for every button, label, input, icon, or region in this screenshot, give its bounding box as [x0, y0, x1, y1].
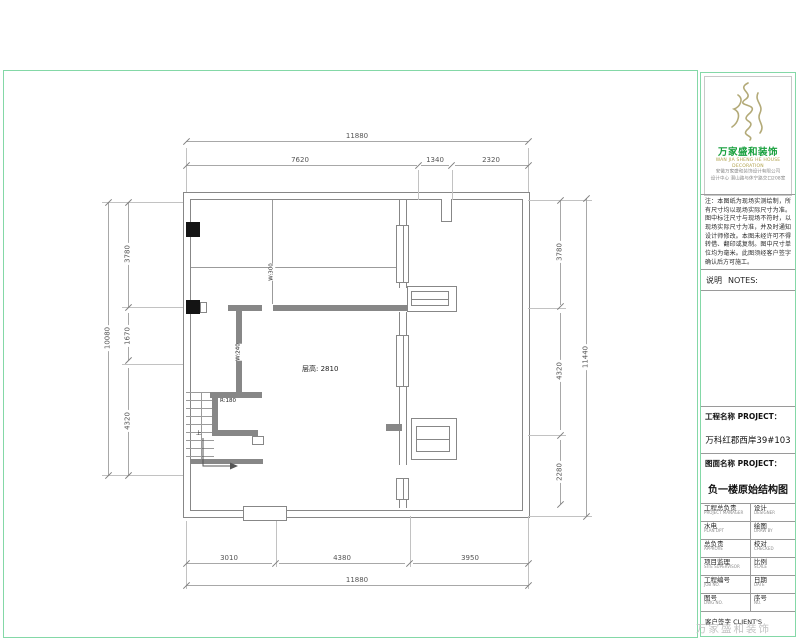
project-name: 万科红郡西岸39#103: [705, 434, 790, 446]
drawing-name-row: 负一楼原始结构图: [701, 473, 795, 503]
wall-protrusion: [243, 506, 287, 521]
project-label: 工程名称 PROJECT：: [705, 411, 781, 422]
drawing-name: 负一楼原始结构图: [708, 481, 788, 496]
cad-sheet: 层高: 2810 W:300 W:240 R:180 上 11880 7620 …: [0, 0, 800, 640]
interior-wall-horizontal: [228, 305, 410, 311]
dim-line-top-seg1: [186, 165, 417, 166]
cell-en: JOB NO.: [704, 584, 745, 588]
project-name-row: 万科红郡西岸39#103: [701, 426, 795, 453]
floor-height-label: 层高: 2810: [302, 366, 338, 373]
company-line2: 设计中心 潜山路与休宁路交口208室: [708, 176, 787, 182]
dim-bottom-seg2: 4380: [331, 555, 353, 562]
table-row: 工程总负责PROJECT MANAGER 设计DESIGNER: [701, 504, 795, 522]
dim-top-total: 11880: [344, 133, 370, 140]
dim-right-seg2: 4320: [557, 360, 564, 382]
dim-bottom-total: 11880: [344, 577, 370, 584]
cell-en: NO.: [754, 602, 791, 606]
up-arrow: [196, 436, 241, 474]
ext-line: [528, 308, 566, 309]
partition-horizontal: [191, 267, 399, 268]
ext-line: [418, 170, 419, 200]
ext-line: [102, 475, 183, 476]
ext-line: [186, 521, 187, 589]
window-symbol-lower: [396, 478, 409, 500]
cell-en: SCALE: [754, 566, 791, 570]
notes-header: 说明 NOTES:: [701, 269, 795, 291]
general-notes: 注：本图纸为现场实测绘制，所有尺寸均以现场实际尺寸为准。图中标注尺寸与现场不符时…: [701, 194, 795, 269]
dim-left-seg3: 4320: [125, 410, 132, 432]
column-top-left: [186, 222, 200, 237]
dim-right-seg3: 2280: [557, 461, 564, 483]
dim-line-bottom-seg2: [279, 563, 405, 564]
wall-stub: [386, 424, 402, 431]
title-block-panel: 万家盛和装饰 WAN JIA SHENG HE HOUSE DECORATION…: [700, 72, 796, 637]
ext-line: [186, 148, 187, 192]
table-row: 项目监理SITE SUPERVISOR 比例SCALE: [701, 558, 795, 576]
column-tab: [200, 302, 207, 313]
table-row: 图号DWG NO. 序号NO.: [701, 594, 795, 612]
ext-line: [122, 364, 183, 365]
ext-line: [528, 516, 592, 517]
dim-left-total: 10080: [105, 325, 112, 351]
shaft-upper-window: [411, 291, 449, 306]
ext-line: [410, 516, 411, 567]
stair-rise-label: R:180: [220, 399, 236, 405]
dim-left-seg1: 3780: [125, 243, 132, 265]
window-symbol-upper: [396, 225, 409, 283]
brand-name-en: WAN JIA SHENG HE HOUSE DECORATION: [705, 158, 791, 169]
ext-line: [528, 148, 529, 192]
drawing-label: 图面名称 PROJECT：: [705, 458, 781, 469]
dim-line-top-total: [186, 141, 528, 142]
company-line1: 安徽万家盛和装饰设计有限公司: [708, 169, 787, 175]
shaft-lower-window: [416, 426, 450, 452]
cell-en: DWG NO.: [704, 602, 745, 606]
cell-en: PROJECT MANAGER: [704, 512, 745, 516]
dim-top-seg1: 7620: [289, 157, 311, 164]
dim-top-seg2: 1340: [424, 157, 446, 164]
ext-line: [452, 170, 453, 200]
cell-en: DRAW BY: [754, 530, 791, 534]
ext-line: [528, 516, 529, 589]
dim-right-total: 11440: [583, 344, 590, 370]
project-label-row: 工程名称 PROJECT：: [701, 406, 795, 426]
logo-box: 万家盛和装饰 WAN JIA SHENG HE HOUSE DECORATION…: [704, 76, 792, 196]
dim-line-top-seg3: [455, 165, 528, 166]
dim-line-top-seg2: [421, 165, 449, 166]
dim-left-seg2: 1670: [125, 325, 132, 347]
ext-line: [122, 307, 183, 308]
dim-bottom-seg3: 3950: [459, 555, 481, 562]
door-gap: [262, 304, 273, 312]
top-wall-notch: [441, 199, 452, 222]
notes-label-cn: 说明: [706, 275, 722, 286]
title-block-table: 工程总负责PROJECT MANAGER 设计DESIGNER 水电PLAN D…: [701, 503, 795, 612]
table-row: 总负责APPROVE 校对CHECKED: [701, 540, 795, 558]
notes-label-en: NOTES:: [728, 276, 758, 285]
window-symbol-middle: [396, 335, 409, 387]
cell-en: PLAN DPT: [704, 530, 745, 534]
drawing-label-row: 图面名称 PROJECT：: [701, 453, 795, 473]
dim-bottom-seg1: 3010: [218, 555, 240, 562]
up-label: 上: [196, 432, 202, 438]
watermark: 万家盛和装饰: [696, 621, 771, 636]
cell-en: DATE: [754, 584, 791, 588]
cell-en: SITE SUPERVISOR: [704, 566, 745, 570]
column-mid-left: [186, 300, 200, 314]
dim-line-bottom-total: [186, 585, 528, 586]
wall-300-label: W:300: [269, 263, 275, 280]
dim-top-seg3: 2320: [480, 157, 502, 164]
table-row: 水电PLAN DPT 绘图DRAW BY: [701, 522, 795, 540]
cell-en: DESIGNER: [754, 512, 791, 516]
brand-name: 万家盛和装饰: [705, 148, 791, 158]
dim-line-bottom-seg3: [413, 563, 528, 564]
wall-240-label: W:240: [236, 343, 242, 360]
cell-en: APPROVE: [704, 548, 745, 552]
partition-vertical: [272, 200, 273, 307]
brand-logo-icon: [720, 79, 776, 143]
cell-en: CHECKED: [754, 548, 791, 552]
table-row: 工程编号JOB NO. 日期DATE: [701, 576, 795, 594]
ext-line: [102, 202, 183, 203]
dim-line-bottom-seg1: [186, 563, 272, 564]
stair-wall-jog: [252, 436, 264, 445]
dim-right-seg1: 3780: [557, 241, 564, 263]
